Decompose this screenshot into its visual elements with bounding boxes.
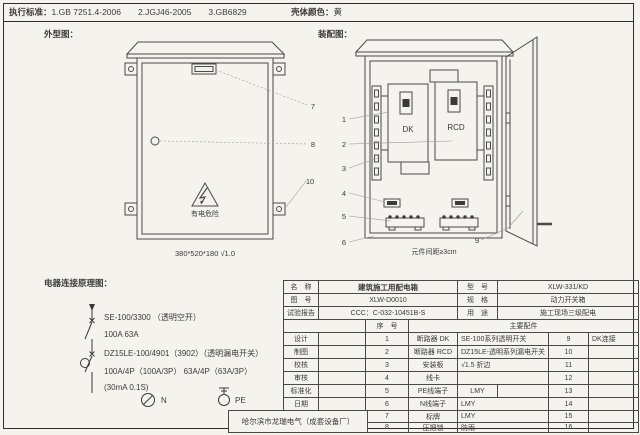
part-no: 1 — [366, 333, 409, 346]
part-spec-extra — [498, 385, 549, 398]
schematic-line-2: 100A 63A — [104, 330, 139, 339]
rcd-blade — [85, 356, 92, 372]
assembly-roof — [356, 40, 513, 52]
part-name: 断路器 RCD — [409, 346, 458, 359]
shell-color-label: 壳体颜色： — [291, 7, 334, 17]
part-no2: 10 — [549, 346, 589, 359]
seq-header-cell: 序 号 — [366, 320, 409, 333]
electric-hazard-icon — [192, 183, 218, 206]
parts-header-cell: 主要配件 — [409, 320, 638, 333]
rcd-symbol — [81, 359, 90, 368]
part-name2 — [589, 372, 638, 385]
schematic-line-5: (30mA 0.1S) — [104, 383, 148, 392]
part-spec: DZ15LE-透明系列漏电开关 — [458, 346, 549, 359]
dimension-note: 380*520*180 √1.0 — [175, 249, 235, 258]
name-plate — [192, 64, 216, 74]
pe-terminal-label: PE — [235, 396, 246, 405]
part-spec — [458, 372, 549, 385]
callout-2: 2 — [342, 140, 346, 149]
cabinet-roof-lip — [127, 54, 284, 58]
cabinet-door — [142, 63, 268, 234]
schematic-section-label: 电器连接原理图： — [44, 277, 112, 289]
terminal-strip-left — [386, 215, 424, 230]
assembly-inner-wall — [370, 61, 497, 233]
name-plate-inner — [195, 67, 213, 72]
assembly-roof-lip — [356, 52, 513, 56]
drawing-no-label-cell: 图 号 — [284, 294, 319, 307]
sign-blank — [319, 385, 366, 398]
part-spec: LMY — [458, 398, 549, 411]
blank-cell — [284, 320, 366, 333]
schematic-line-3: DZ15LE-100/4901（3902）（透明漏电开关） — [104, 348, 263, 359]
part-name: 线卡 — [409, 372, 458, 385]
test-report-label-cell: 试验报告 — [284, 307, 319, 320]
callout-8: 8 — [311, 140, 315, 149]
standards-label: 执行标准： — [9, 7, 52, 17]
test-report-value-cell: CCC：C-032-10451B-S — [319, 307, 458, 320]
part-name2 — [589, 385, 638, 398]
shell-color-value: 黄 — [334, 7, 343, 17]
drawing-sheet: 执行标准：1.GB 7251.4-2006 2.JGJ46-2005 3.GB6… — [0, 0, 640, 435]
wiring-stubs — [381, 96, 484, 150]
schematic-line-1: SE-100/3300 （透明空开） — [104, 312, 201, 323]
open-door — [506, 37, 537, 246]
part-spec: LMY — [458, 385, 498, 398]
callout-6: 6 — [342, 238, 346, 247]
part-no: 4 — [366, 372, 409, 385]
part-name: 标牌 — [409, 411, 458, 423]
assembly-section-label: 装配图： — [318, 28, 352, 40]
pe-terminal-icon — [219, 388, 230, 406]
mounting-ear-top-left — [125, 63, 137, 75]
use-value-cell: 施工现场三级配电 — [498, 307, 638, 320]
part-name2 — [589, 411, 638, 423]
sign-blank — [319, 333, 366, 346]
sign-label-design: 设计 — [284, 333, 319, 346]
model-value-cell: XLW-331/KD — [498, 281, 638, 294]
part-spec: LMY — [458, 411, 549, 423]
door-lock — [151, 137, 159, 145]
part-name: 压把锁 — [409, 423, 458, 432]
part-name: 安装板 — [409, 359, 458, 372]
callout-5: 5 — [342, 212, 346, 221]
rcd-breaker — [435, 82, 477, 160]
callout-1: 1 — [342, 115, 346, 124]
part-no2: 16 — [549, 423, 589, 432]
part-name: 断路器 DK — [409, 333, 458, 346]
n-terminal-label: N — [161, 396, 167, 405]
name-label-cell: 名 称 — [284, 281, 319, 294]
schematic-line-4: 100A/4P（100A/3P） 63A/4P（63A/3P） — [104, 366, 252, 377]
company-name-box: 哈尔滨市龙瑞电气（成套设备厂） — [228, 410, 368, 433]
part-name2: DK连接 — [589, 333, 638, 346]
sign-label-check: 校核 — [284, 359, 319, 372]
sign-blank — [319, 372, 366, 385]
supply-arrow — [89, 304, 95, 311]
left-rail — [372, 86, 381, 180]
part-no: 5 — [366, 385, 409, 398]
part-no2: 14 — [549, 398, 589, 411]
n-terminal-icon — [142, 394, 155, 407]
name-value-cell: 建筑施工用配电箱 — [319, 281, 458, 294]
mounting-ear-bottom-right — [273, 203, 285, 215]
shell-color-group: 壳体颜色：黄 — [285, 3, 342, 21]
outline-cabinet: 有电危险 380*520*180 √1.0 — [125, 42, 285, 258]
callout-3: 3 — [342, 164, 346, 173]
part-no: 3 — [366, 359, 409, 372]
assembly-cabinet: DK RCD — [356, 37, 552, 256]
contact-mark-mid — [90, 352, 95, 357]
isolator-blade — [85, 322, 92, 339]
hazard-text: 有电危险 — [191, 209, 219, 218]
part-no: 6 — [366, 398, 409, 411]
part-spec: 防雨 — [458, 423, 549, 432]
use-label-cell: 用 途 — [458, 307, 498, 320]
sign-label-draft: 制图 — [284, 346, 319, 359]
contact-mark-top — [90, 318, 95, 323]
part-no: 7 — [366, 411, 409, 423]
dk-breaker-label: DK — [402, 125, 414, 134]
busbar-top — [430, 70, 458, 82]
part-name: N线端子 — [409, 398, 458, 411]
part-no: 2 — [366, 346, 409, 359]
spec-label-cell: 规 格 — [458, 294, 498, 307]
spacing-note: 元件间距≥3cm — [411, 247, 456, 256]
mounting-ear-top-right — [273, 63, 285, 75]
sign-blank — [319, 346, 366, 359]
rcd-breaker-label: RCD — [447, 123, 465, 132]
part-spec: SE-100系列透明开关 — [458, 333, 549, 346]
part-no: 8 — [366, 423, 409, 432]
callout-10: 10 — [306, 177, 314, 186]
model-label-cell: 型 号 — [458, 281, 498, 294]
part-no2: 9 — [549, 333, 589, 346]
dk-breaker — [388, 84, 428, 162]
callout-numbers: 1 2 3 4 5 6 7 8 9 10 — [306, 102, 479, 247]
cabinet-body — [137, 58, 273, 239]
part-name2 — [589, 398, 638, 411]
part-spec: √1.5 折边 — [458, 359, 549, 372]
callout-4: 4 — [342, 189, 346, 198]
terminal-strip-right — [440, 215, 478, 230]
right-rail — [484, 86, 493, 180]
spec-value-cell: 动力开关箱 — [498, 294, 638, 307]
standards-value: 1.GB 7251.4-2006 2.JGJ46-2005 3.GB6829 — [52, 7, 247, 17]
part-name2 — [589, 423, 638, 432]
mounting-ear-bottom-left — [125, 203, 137, 215]
busbar-bottom — [401, 162, 429, 174]
callout-7: 7 — [311, 102, 315, 111]
cable-clamp-left — [384, 199, 400, 207]
part-no2: 15 — [549, 411, 589, 423]
cabinet-roof — [127, 42, 284, 54]
sign-blank — [319, 359, 366, 372]
part-name2 — [589, 359, 638, 372]
outline-section-label: 外型图： — [44, 28, 78, 40]
part-name2 — [589, 346, 638, 359]
cable-clamp-right — [452, 199, 468, 207]
standards-strip: 执行标准：1.GB 7251.4-2006 2.JGJ46-2005 3.GB6… — [3, 3, 634, 22]
callout-9: 9 — [475, 236, 479, 245]
sign-label-review: 审核 — [284, 372, 319, 385]
assembly-body — [365, 56, 502, 238]
callout-leaders — [160, 70, 523, 242]
sign-label-standard: 标准化 — [284, 385, 319, 398]
part-name: PE线端子 — [409, 385, 458, 398]
part-no2: 11 — [549, 359, 589, 372]
part-no2: 12 — [549, 372, 589, 385]
part-no2: 13 — [549, 385, 589, 398]
drawing-no-value-cell: XLW-D0010 — [319, 294, 458, 307]
